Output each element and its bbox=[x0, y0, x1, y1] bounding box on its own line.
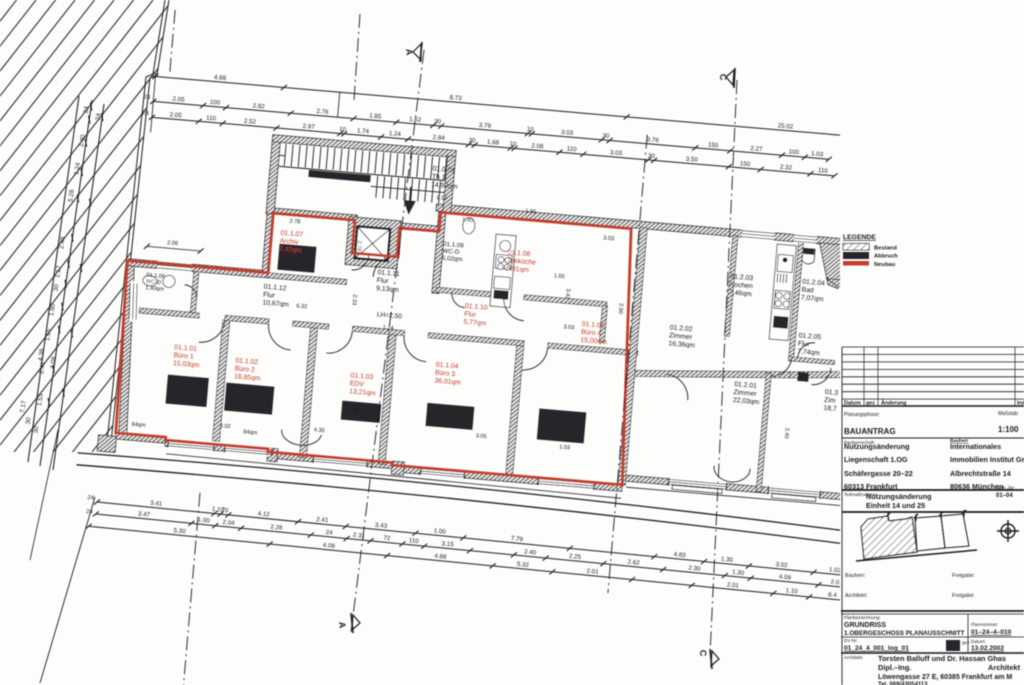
svg-text:Nutzungsänderung: Nutzungsänderung bbox=[844, 442, 909, 451]
svg-text:1.03: 1.03 bbox=[559, 444, 570, 451]
svg-text:Löwengasse 27 E, 60385 Frankfu: Löwengasse 27 E, 60385 Frankfurt am M bbox=[878, 674, 1012, 681]
svg-text:Flur: Flur bbox=[798, 340, 811, 348]
svg-text:3.41: 3.41 bbox=[150, 500, 163, 508]
svg-text:2.01: 2.01 bbox=[586, 568, 599, 576]
svg-text:1.00: 1.00 bbox=[197, 516, 210, 524]
svg-text:gez: gez bbox=[866, 401, 875, 407]
svg-text:30: 30 bbox=[648, 152, 656, 160]
svg-text:25.02: 25.02 bbox=[777, 122, 794, 130]
svg-text:Internationales: Internationales bbox=[950, 442, 1001, 451]
svg-text:4.83: 4.83 bbox=[673, 551, 686, 559]
svg-text:Neubau: Neubau bbox=[874, 262, 896, 268]
svg-text:Torsten Balluff und Dr. Hassan: Torsten Balluff und Dr. Hassan Ghas bbox=[878, 654, 1006, 663]
svg-text:01_24_4_001_log_01: 01_24_4_001_log_01 bbox=[844, 645, 909, 652]
svg-text:3.03: 3.03 bbox=[603, 235, 614, 242]
svg-text:4.12: 4.12 bbox=[257, 510, 270, 518]
svg-text:1.30: 1.30 bbox=[721, 556, 734, 564]
svg-text:24: 24 bbox=[143, 95, 151, 102]
svg-text:Zim: Zim bbox=[824, 397, 836, 405]
svg-text:Abbruch: Abbruch bbox=[874, 254, 898, 260]
svg-text:13.02.2002: 13.02.2002 bbox=[971, 645, 1004, 652]
svg-text:2.33: 2.33 bbox=[351, 294, 358, 305]
svg-text:1.24: 1.24 bbox=[383, 325, 394, 332]
svg-text:2.41: 2.41 bbox=[316, 516, 329, 524]
svg-text:2.25: 2.25 bbox=[569, 553, 582, 561]
svg-text:2.32: 2.32 bbox=[780, 164, 793, 172]
svg-text:8.73: 8.73 bbox=[449, 94, 462, 102]
svg-text:1.00: 1.00 bbox=[433, 528, 446, 536]
svg-text:2.90: 2.90 bbox=[617, 303, 624, 314]
svg-text:Freigabe:: Freigabe: bbox=[952, 573, 975, 579]
svg-text:BAUANTRAG: BAUANTRAG bbox=[844, 427, 896, 436]
svg-text:2.52: 2.52 bbox=[244, 118, 257, 126]
svg-text:10: 10 bbox=[509, 140, 517, 148]
svg-text:110: 110 bbox=[818, 167, 829, 175]
svg-text:3.79: 3.79 bbox=[479, 122, 492, 130]
svg-text:Planbezeichnung:: Planbezeichnung: bbox=[844, 615, 881, 620]
svg-text:110: 110 bbox=[408, 537, 419, 545]
svg-text:1.74: 1.74 bbox=[357, 127, 370, 135]
svg-text:72: 72 bbox=[383, 535, 391, 543]
svg-text:1.85: 1.85 bbox=[369, 112, 382, 120]
svg-text:4.09: 4.09 bbox=[322, 542, 335, 550]
svg-text:4.30: 4.30 bbox=[314, 427, 325, 434]
svg-text:110: 110 bbox=[566, 145, 577, 153]
svg-text:3.03: 3.03 bbox=[610, 149, 623, 157]
svg-text:2.01: 2.01 bbox=[727, 581, 740, 589]
svg-text:2.62: 2.62 bbox=[627, 559, 640, 567]
svg-text:gez: gez bbox=[962, 640, 970, 645]
svg-text:1.10: 1.10 bbox=[785, 587, 798, 595]
svg-text:Flur: Flur bbox=[376, 277, 389, 285]
svg-text:DV Nr:: DV Nr: bbox=[844, 638, 858, 643]
svg-text:Flur: Flur bbox=[263, 291, 276, 299]
svg-text:1.65: 1.65 bbox=[554, 273, 565, 280]
svg-text:Änderung: Änderung bbox=[881, 400, 906, 407]
svg-text:30: 30 bbox=[434, 118, 442, 126]
svg-text:Bauherr:: Bauherr: bbox=[845, 573, 866, 579]
svg-text:Architekt:: Architekt: bbox=[845, 593, 867, 599]
svg-text:3.76: 3.76 bbox=[646, 136, 659, 144]
svg-text:24: 24 bbox=[87, 495, 95, 502]
svg-text:LEGENDE: LEGENDE bbox=[843, 234, 876, 241]
svg-text:1.30: 1.30 bbox=[732, 569, 745, 577]
svg-text:3.02: 3.02 bbox=[775, 561, 788, 569]
svg-text:GRUNDRISS: GRUNDRISS bbox=[844, 622, 886, 629]
svg-text:10: 10 bbox=[339, 126, 347, 134]
svg-text:Planungsphase:: Planungsphase: bbox=[844, 412, 880, 418]
svg-text:Immobilien Institut GmbH: Immobilien Institut GmbH bbox=[950, 455, 1024, 464]
svg-text:18,7: 18,7 bbox=[823, 405, 837, 413]
svg-text:Ind: Ind bbox=[1017, 401, 1024, 407]
svg-text:2.04: 2.04 bbox=[222, 519, 235, 527]
svg-text:2.28: 2.28 bbox=[270, 524, 283, 532]
svg-text:1.95: 1.95 bbox=[525, 209, 536, 216]
svg-text:3.47: 3.47 bbox=[138, 511, 151, 519]
svg-text:2.78: 2.78 bbox=[289, 218, 300, 225]
svg-text:Architekt:: Architekt: bbox=[844, 655, 863, 660]
svg-text:1.03: 1.03 bbox=[811, 150, 824, 158]
svg-text:2.30: 2.30 bbox=[688, 565, 701, 573]
svg-text:2.31: 2.31 bbox=[353, 532, 366, 540]
svg-text:2.05: 2.05 bbox=[169, 111, 182, 119]
svg-text:Dipl.–Ing.: Dipl.–Ing. bbox=[878, 663, 911, 672]
svg-text:Datum:: Datum: bbox=[971, 639, 986, 644]
svg-text:2.27: 2.27 bbox=[750, 145, 763, 153]
svg-text:01.3: 01.3 bbox=[825, 389, 839, 397]
svg-text:3.03: 3.03 bbox=[563, 324, 574, 331]
svg-text:Liegenschaft 1.OG: Liegenschaft 1.OG bbox=[844, 455, 908, 464]
svg-text:70: 70 bbox=[221, 507, 229, 515]
svg-text:1:100: 1:100 bbox=[998, 425, 1019, 434]
svg-text:3.43: 3.43 bbox=[375, 522, 388, 530]
svg-text:2.08: 2.08 bbox=[531, 142, 544, 150]
svg-text:Bestand: Bestand bbox=[874, 246, 897, 252]
svg-text:84qm: 84qm bbox=[243, 429, 258, 436]
svg-text:4.09: 4.09 bbox=[779, 573, 792, 581]
svg-text:30: 30 bbox=[468, 137, 476, 145]
svg-text:2.84: 2.84 bbox=[432, 134, 445, 142]
svg-text:Albrechtstraße 14: Albrechtstraße 14 bbox=[950, 469, 1011, 478]
svg-text:100: 100 bbox=[209, 99, 220, 107]
svg-text:2.97: 2.97 bbox=[302, 123, 315, 131]
svg-text:Flur: Flur bbox=[464, 311, 477, 319]
svg-text:6.4: 6.4 bbox=[828, 591, 838, 599]
svg-text:3.02: 3.02 bbox=[220, 423, 231, 430]
svg-text:Datum: Datum bbox=[844, 401, 861, 407]
svg-text:Bad: Bad bbox=[801, 286, 814, 294]
svg-text:EDV: EDV bbox=[350, 380, 365, 388]
svg-text:2.40: 2.40 bbox=[783, 427, 790, 438]
svg-text:Plannummer:: Plannummer: bbox=[971, 622, 998, 627]
svg-text:2.76: 2.76 bbox=[355, 240, 362, 251]
svg-text:2.82: 2.82 bbox=[252, 102, 265, 110]
svg-text:3.15: 3.15 bbox=[441, 540, 454, 548]
svg-text:Freigabe:: Freigabe: bbox=[952, 593, 975, 599]
svg-text:24: 24 bbox=[325, 529, 333, 537]
svg-text:24: 24 bbox=[142, 110, 150, 117]
svg-text:C: C bbox=[718, 74, 728, 82]
svg-text:01–24–4–010: 01–24–4–010 bbox=[971, 629, 1012, 636]
svg-text:3.05: 3.05 bbox=[476, 433, 487, 440]
svg-text:2.40: 2.40 bbox=[524, 548, 537, 556]
svg-text:Nutzungsänderung: Nutzungsänderung bbox=[866, 492, 931, 501]
svg-text:3.50: 3.50 bbox=[685, 156, 698, 164]
svg-text:Schäfergasse 20–22: Schäfergasse 20–22 bbox=[844, 469, 913, 478]
svg-text:3.42: 3.42 bbox=[564, 288, 571, 299]
svg-text:Einheit 14 und 25: Einheit 14 und 25 bbox=[866, 501, 925, 510]
svg-text:Maßstab:: Maßstab: bbox=[998, 411, 1019, 417]
svg-text:6.32: 6.32 bbox=[296, 303, 307, 310]
svg-text:100: 100 bbox=[788, 148, 799, 156]
svg-text:2.06: 2.06 bbox=[167, 240, 178, 247]
svg-text:Geb.-Nr:: Geb.-Nr: bbox=[996, 486, 1015, 492]
svg-text:84qm: 84qm bbox=[131, 422, 146, 429]
svg-text:2.76: 2.76 bbox=[316, 108, 329, 116]
svg-text:5.30: 5.30 bbox=[173, 527, 186, 535]
svg-text:1.68: 1.68 bbox=[487, 139, 500, 147]
svg-text:110: 110 bbox=[206, 114, 217, 122]
svg-text:1.40: 1.40 bbox=[462, 217, 473, 224]
svg-text:150: 150 bbox=[740, 160, 751, 168]
svg-text:3.03: 3.03 bbox=[561, 129, 574, 137]
svg-text:Architekt: Architekt bbox=[988, 663, 1021, 672]
svg-text:1.03: 1.03 bbox=[829, 566, 842, 574]
svg-text:4.88: 4.88 bbox=[214, 74, 227, 82]
svg-text:Th 1: Th 1 bbox=[432, 173, 446, 181]
svg-text:1.24: 1.24 bbox=[389, 130, 402, 138]
svg-text:150: 150 bbox=[708, 141, 719, 149]
svg-text:2.05: 2.05 bbox=[172, 96, 185, 104]
svg-text:24: 24 bbox=[86, 509, 94, 516]
svg-text:7.79: 7.79 bbox=[511, 535, 524, 543]
svg-text:01–04: 01–04 bbox=[996, 493, 1013, 499]
svg-text:5.32: 5.32 bbox=[517, 561, 530, 569]
svg-text:1.OBERGESCHOSS PLANAUSSCHNITT: 1.OBERGESCHOSS PLANAUSSCHNITT bbox=[844, 630, 964, 637]
svg-text:10: 10 bbox=[526, 126, 534, 134]
svg-text:3.63: 3.63 bbox=[351, 402, 358, 413]
svg-text:4.88: 4.88 bbox=[434, 553, 447, 561]
svg-text:C: C bbox=[698, 650, 708, 658]
svg-text:30: 30 bbox=[602, 132, 610, 140]
svg-text:1.12: 1.12 bbox=[436, 195, 447, 202]
